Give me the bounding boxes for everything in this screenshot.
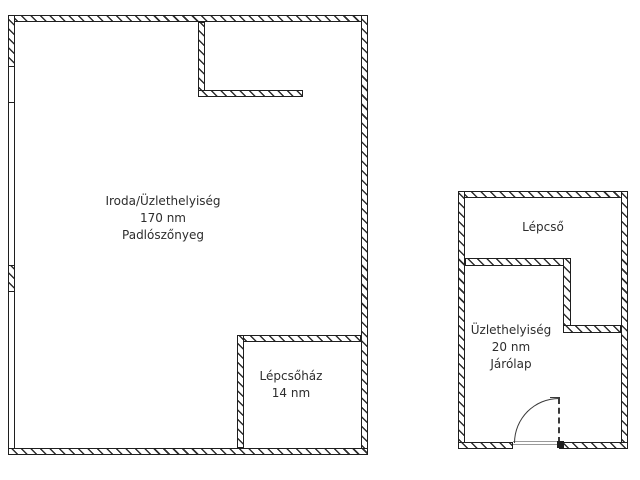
door-hinge: [557, 441, 564, 448]
plan1-wall-left-pier-mid: [8, 265, 15, 292]
room-shop-floor: Járólap: [431, 356, 591, 373]
door-swing-arc: [514, 398, 559, 443]
plan1-wall-left-pier-top: [8, 15, 15, 67]
plan1-wall-top: [8, 15, 368, 22]
door-leaf: [558, 398, 560, 443]
plan1-niche-wall-vertical: [198, 22, 205, 97]
plan2-wall-bottom-right-segment: [559, 442, 628, 449]
room-stairwell-name: Lépcsőház: [211, 368, 371, 385]
plan1-stairwell-wall-top: [237, 335, 361, 342]
room-shop-area: 20 nm: [431, 339, 591, 356]
room-main-floor: Padlószőnyeg: [13, 227, 313, 244]
floorplan-canvas: Iroda/Üzlethelyiség 170 nm Padlószőnyeg …: [0, 0, 640, 480]
plan1-niche-wall-horizontal: [198, 90, 303, 97]
door-leaf-cap: [550, 397, 560, 398]
room-shop-name: Üzlethelyiség: [431, 322, 591, 339]
room-stairwell-area: 14 nm: [211, 385, 371, 402]
plan2-inner-wall-horizontal-upper: [465, 258, 571, 266]
room-stairs-name: Lépcső: [463, 219, 623, 236]
room-label-main: Iroda/Üzlethelyiség 170 nm Padlószőnyeg: [13, 193, 313, 244]
room-label-shop: Üzlethelyiség 20 nm Járólap: [431, 322, 591, 373]
plan1-wall-bottom: [8, 448, 368, 455]
room-main-name: Iroda/Üzlethelyiség: [13, 193, 313, 210]
room-label-stairs: Lépcső: [463, 219, 623, 236]
plan1-window-lower: [8, 292, 15, 448]
room-label-stairwell: Lépcsőház 14 nm: [211, 368, 371, 402]
plan2-wall-bottom-left-segment: [458, 442, 513, 449]
room-main-area: 170 nm: [13, 210, 313, 227]
plan2-wall-top: [458, 191, 628, 198]
plan1-window-mullion-tick: [8, 102, 15, 103]
